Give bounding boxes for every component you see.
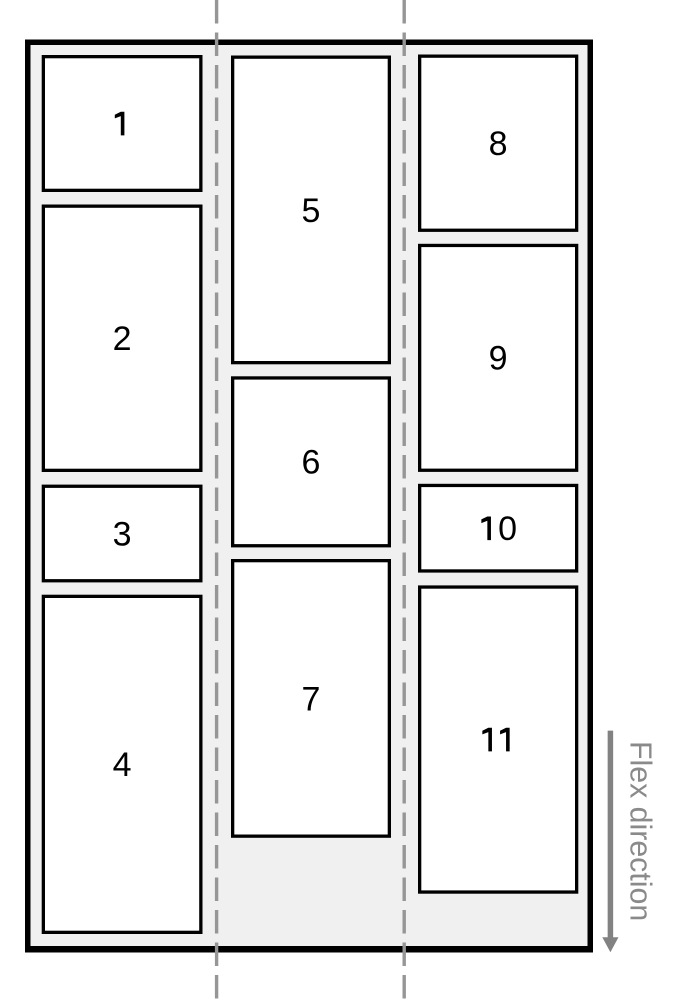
svg-text:5: 5 (302, 192, 321, 230)
svg-text:3: 3 (113, 515, 132, 553)
svg-text:9: 9 (489, 340, 508, 378)
svg-text:2: 2 (113, 320, 132, 358)
svg-text:4: 4 (113, 746, 132, 784)
svg-text:8: 8 (489, 125, 508, 163)
svg-text:7: 7 (302, 680, 321, 718)
svg-text:0: 0 (498, 510, 517, 548)
svg-text:6: 6 (302, 444, 321, 482)
svg-text:Flex direction: Flex direction (624, 741, 657, 921)
